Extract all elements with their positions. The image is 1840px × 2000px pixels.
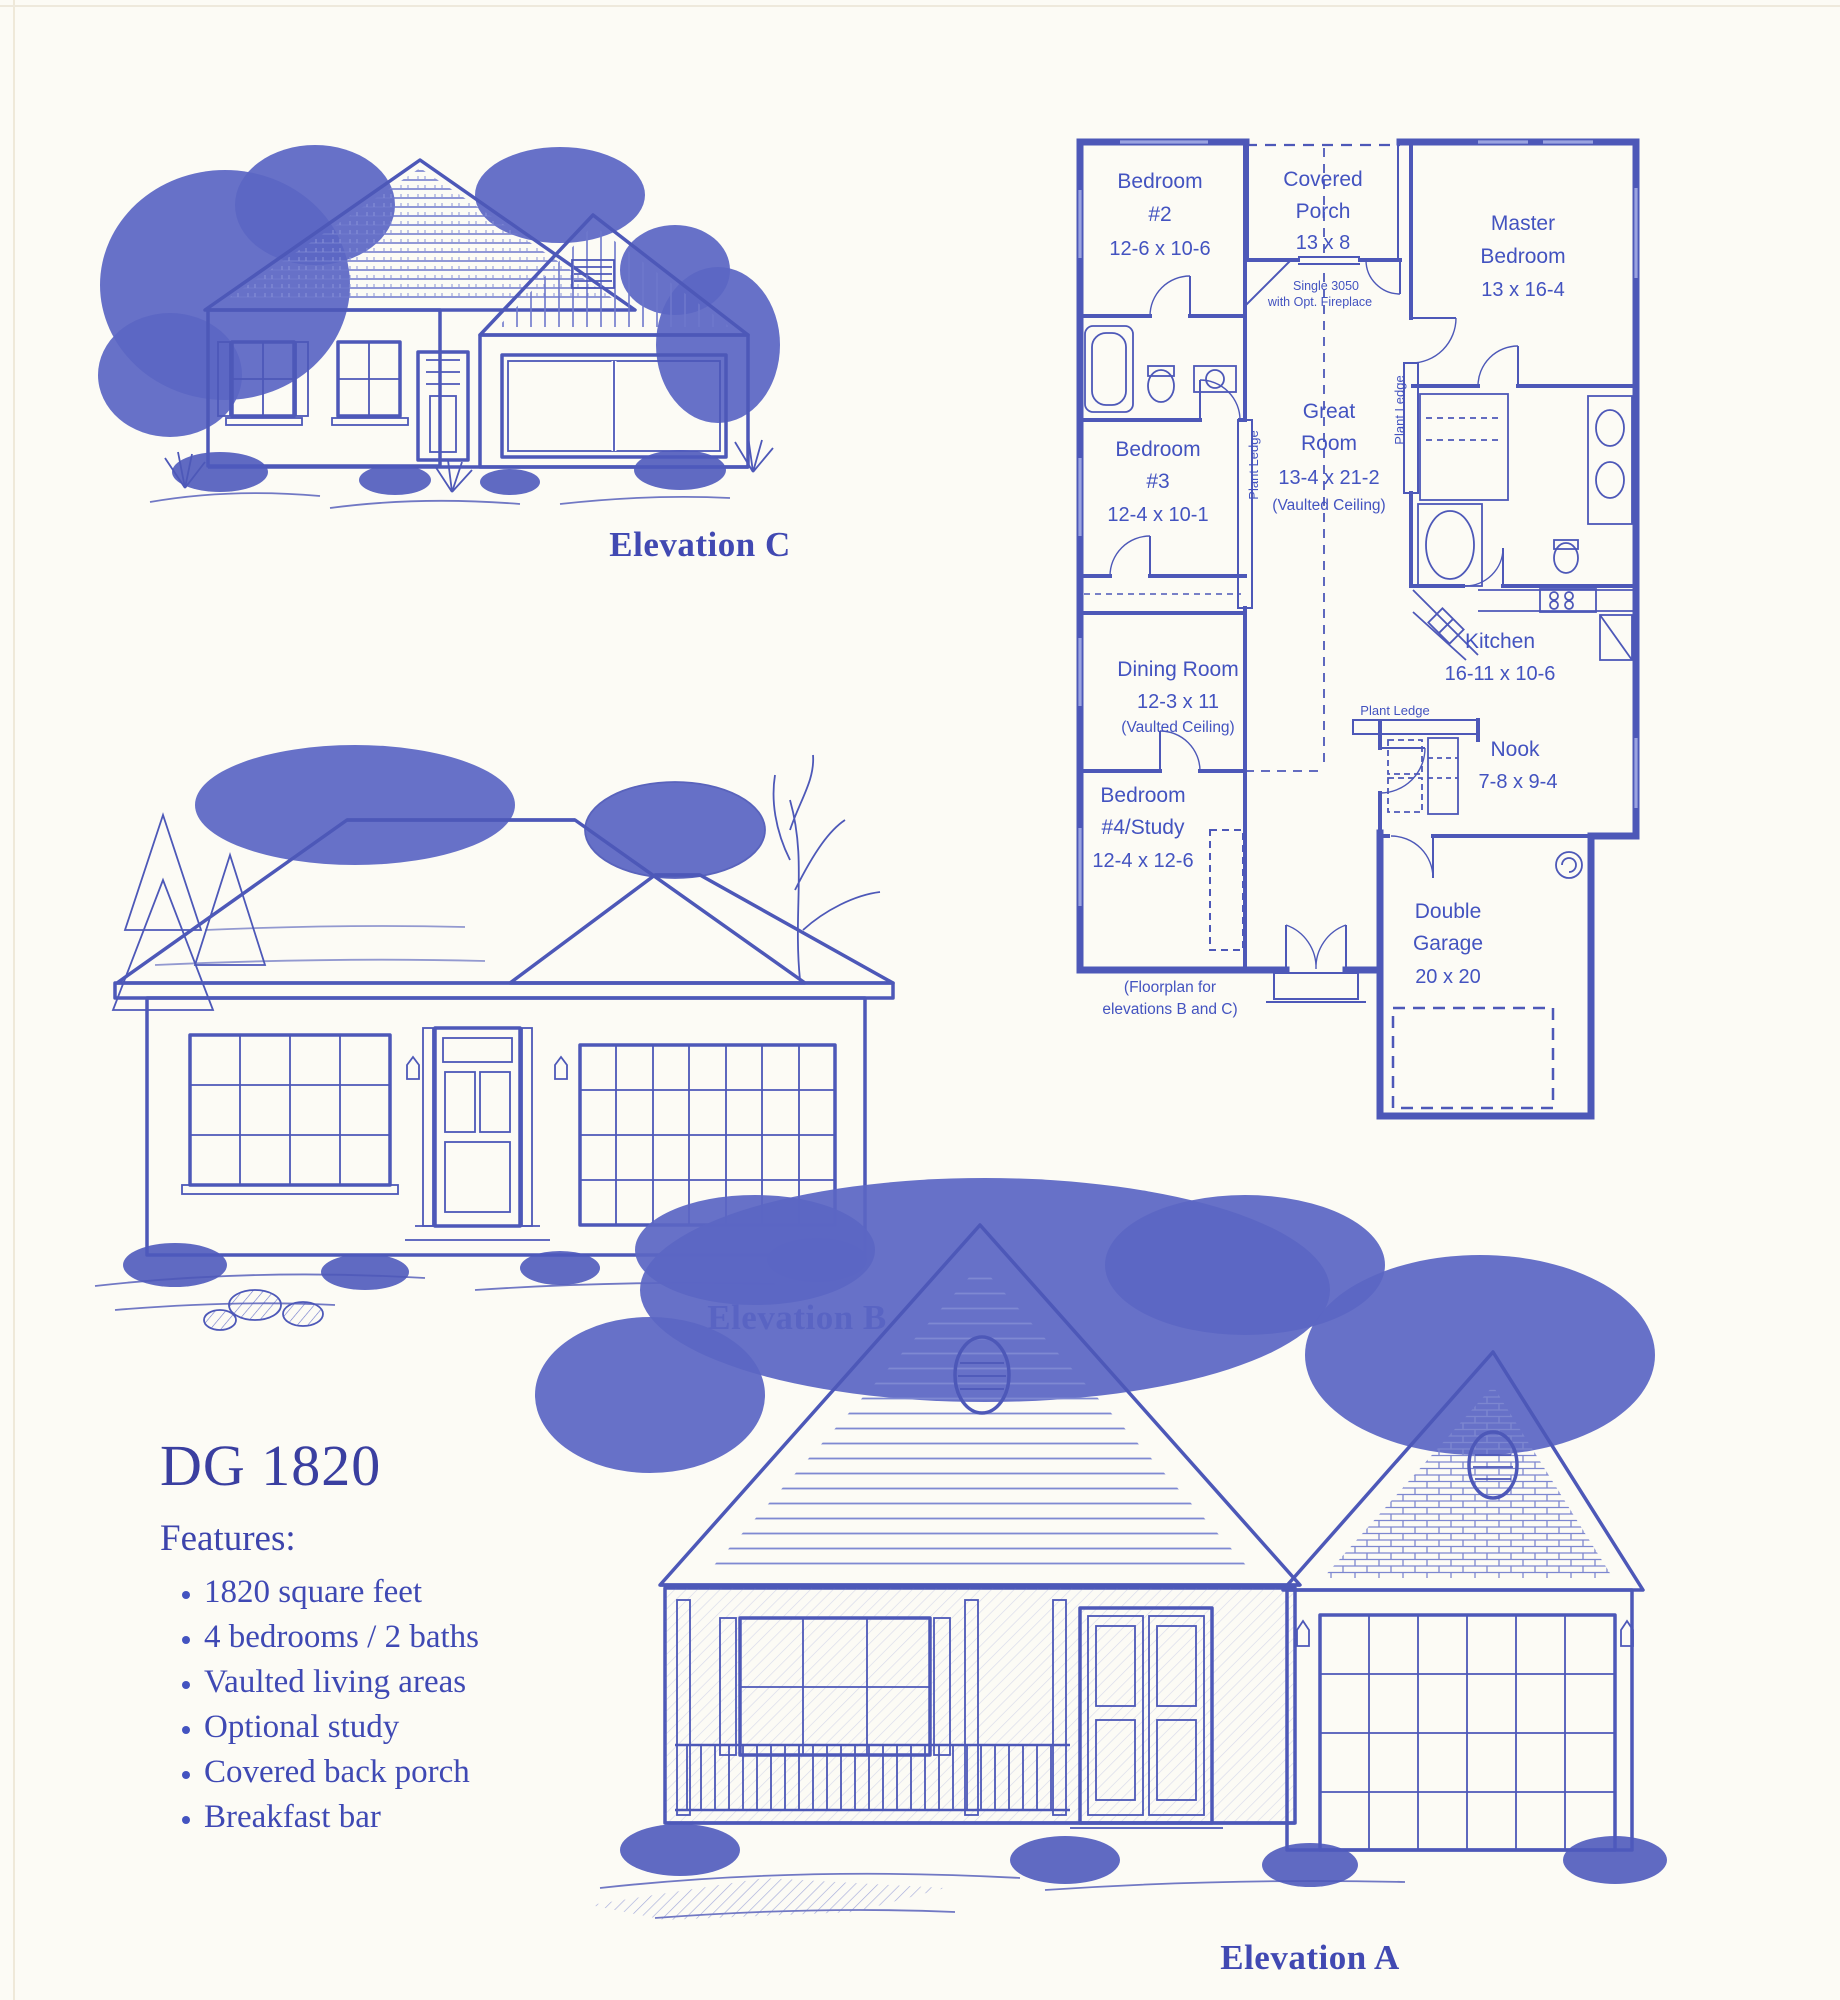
room-label-bedroom3: Bedroom #3 12-4 x 10-1: [1107, 438, 1208, 526]
room-label-bedroom2: Bedroom #2 12-6 x 10-6: [1109, 170, 1210, 260]
scan-edge-left: [13, 0, 15, 2000]
entry-door: [418, 352, 468, 460]
room-label-dining: Dining Room 12-3 x 11 (Vaulted Ceiling): [1117, 658, 1238, 736]
elevation-a-drawing: [425, 1160, 1655, 1950]
svg-text:Master: Master: [1491, 212, 1555, 235]
window-left: [218, 342, 308, 425]
front-window: [182, 1035, 398, 1194]
porch-lamps: [407, 1057, 567, 1079]
svg-text:Bedroom: Bedroom: [1100, 784, 1185, 807]
rocks: [204, 1290, 323, 1330]
room-label-great-room: Great Room 13-4 x 21-2 (Vaulted Ceiling): [1272, 400, 1385, 514]
svg-text:12-4 x 12-6: 12-4 x 12-6: [1092, 850, 1193, 872]
floorplan-note: (Floorplan for elevations B and C): [1102, 979, 1237, 1018]
svg-text:(Vaulted Ceiling): (Vaulted Ceiling): [1121, 719, 1234, 736]
plant-ledge-label-left: Plant Ledge: [1246, 430, 1261, 499]
brochure-page: Elevation C: [0, 0, 1840, 2000]
elevation-a-caption: Elevation A: [1160, 1938, 1460, 1978]
svg-text:20 x 20: 20 x 20: [1415, 966, 1481, 988]
svg-text:13-4 x 21-2: 13-4 x 21-2: [1278, 467, 1379, 489]
elevation-c-caption: Elevation C: [550, 525, 850, 565]
svg-text:16-11 x 10-6: 16-11 x 10-6: [1445, 663, 1556, 685]
fascia-band: [115, 983, 893, 998]
entry-stoop: [1274, 973, 1358, 999]
window-center: [332, 342, 408, 425]
water-heater: [1556, 852, 1582, 878]
svg-text:Garage: Garage: [1413, 932, 1483, 955]
svg-text:12-4 x 10-1: 12-4 x 10-1: [1107, 504, 1208, 526]
trees-left: [113, 745, 515, 1010]
trees-right: [585, 755, 880, 980]
svg-text:Bedroom: Bedroom: [1115, 438, 1200, 461]
svg-text:#4/Study: #4/Study: [1102, 816, 1185, 839]
bedroom4-closet: [1210, 830, 1243, 950]
garage-hip-roof: [510, 875, 893, 983]
svg-text:#3: #3: [1146, 470, 1169, 493]
room-label-garage: Double Garage 20 x 20: [1413, 900, 1483, 988]
main-wall: [665, 1588, 1295, 1823]
garage-lamps: [1297, 1621, 1633, 1646]
bath1-fixtures: [1085, 326, 1236, 412]
svg-text:Single 3050: Single 3050: [1293, 279, 1359, 293]
svg-text:elevations B and C): elevations B and C): [1102, 1001, 1237, 1018]
window-fireplace-note: Single 3050 with Opt. Fireplace: [1267, 279, 1372, 309]
shrubs-and-ground: [150, 436, 773, 508]
svg-text:with Opt. Fireplace: with Opt. Fireplace: [1267, 295, 1372, 309]
front-entry: [1266, 925, 1366, 1002]
svg-text:13 x 16-4: 13 x 16-4: [1481, 279, 1564, 301]
svg-text:Dining Room: Dining Room: [1117, 658, 1238, 681]
svg-text:Double: Double: [1415, 900, 1482, 923]
pantry-utility: [1388, 738, 1458, 814]
svg-text:7-8 x 9-4: 7-8 x 9-4: [1479, 771, 1558, 793]
room-label-master: Master Bedroom 13 x 16-4: [1480, 212, 1565, 301]
svg-text:#2: #2: [1148, 203, 1171, 226]
svg-text:Kitchen: Kitchen: [1465, 630, 1535, 653]
room-label-covered-porch: Covered Porch 13 x 8: [1283, 168, 1362, 254]
svg-text:12-6 x 10-6: 12-6 x 10-6: [1109, 238, 1210, 260]
scan-edge-top: [0, 5, 1840, 7]
room-label-bedroom4: Bedroom #4/Study 12-4 x 12-6: [1092, 784, 1193, 872]
svg-text:Great: Great: [1303, 400, 1356, 423]
svg-text:Porch: Porch: [1296, 200, 1351, 223]
shrubs-ground: [590, 1823, 1667, 1920]
garage-wall: [1287, 1590, 1633, 1850]
floor-plan: Bedroom #2 12-6 x 10-6 Covered Porch 13 …: [1048, 128, 1660, 1133]
svg-text:Nook: Nook: [1490, 738, 1540, 761]
svg-text:13 x 8: 13 x 8: [1296, 232, 1350, 254]
garage-door-opening: [1393, 1008, 1553, 1108]
plant-ledge-label-right: Plant Ledge: [1392, 375, 1407, 444]
room-label-nook: Nook 7-8 x 9-4: [1479, 738, 1558, 793]
svg-text:(Vaulted Ceiling): (Vaulted Ceiling): [1272, 497, 1385, 514]
plant-ledge-label-kitchen: Plant Ledge: [1360, 703, 1429, 718]
garage-door: [1320, 1615, 1615, 1850]
svg-text:Bedroom: Bedroom: [1117, 170, 1202, 193]
svg-text:Bedroom: Bedroom: [1480, 245, 1565, 268]
elevation-c-drawing: [90, 100, 780, 525]
svg-text:Covered: Covered: [1283, 168, 1362, 191]
left-wing-walls: [1080, 142, 1252, 970]
master-bath-fixtures: [1418, 394, 1632, 586]
svg-text:Room: Room: [1301, 432, 1357, 455]
svg-text:(Floorplan for: (Floorplan for: [1124, 979, 1216, 996]
plant-ledge-wall-kitchen: [1353, 720, 1478, 734]
svg-text:12-3 x 11: 12-3 x 11: [1137, 691, 1219, 713]
